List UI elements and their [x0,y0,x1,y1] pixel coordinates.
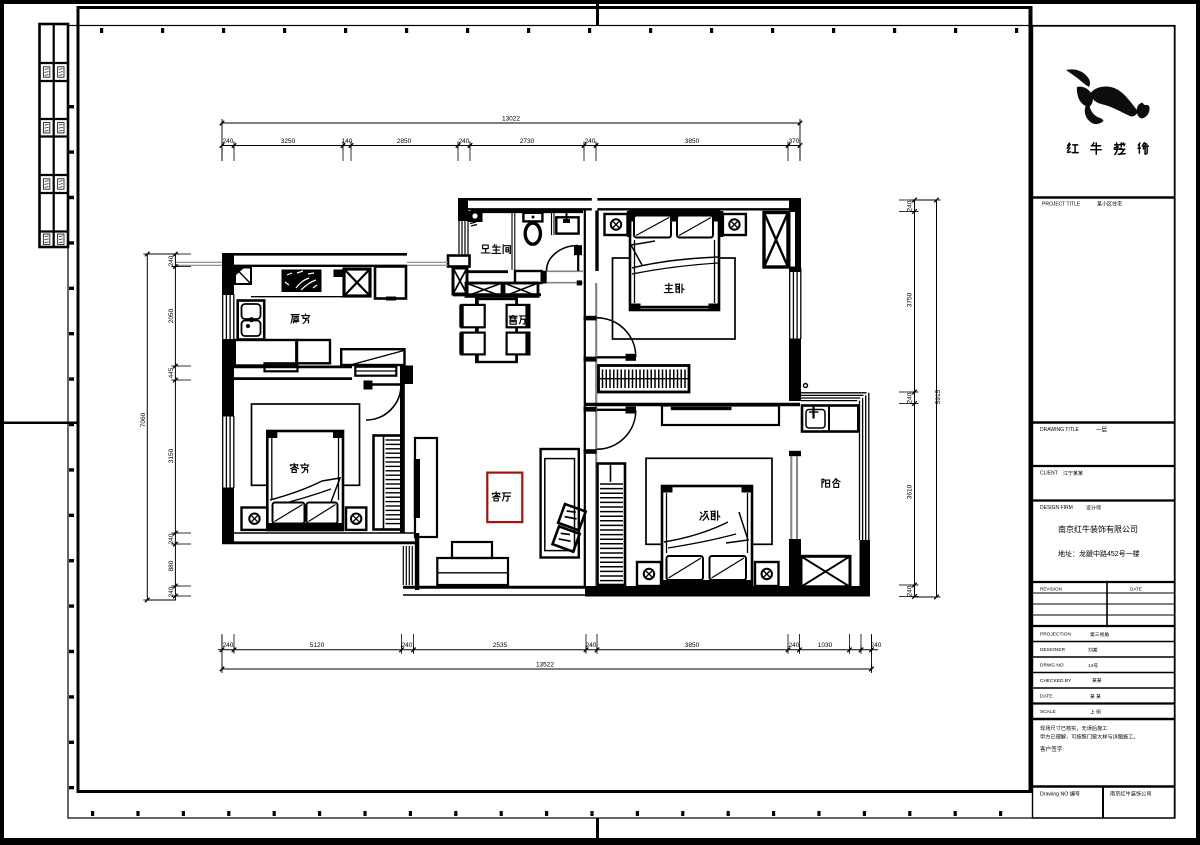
svg-text:REVISION: REVISION [1040,587,1062,592]
svg-text:370: 370 [789,138,800,145]
svg-text:3750: 3750 [907,292,914,307]
svg-text:240: 240 [168,586,175,597]
svg-text:240: 240 [586,642,597,649]
svg-text:3850: 3850 [685,138,700,145]
svg-text:2850: 2850 [397,138,412,145]
svg-text:DRAWING TITLE: DRAWING TITLE [1040,427,1080,433]
svg-text:240: 240 [789,642,800,649]
svg-text:PROJECTION: PROJECTION [1040,632,1071,638]
svg-text:一层: 一层 [1096,427,1108,434]
svg-text:240: 240 [168,533,175,544]
svg-text:5120: 5120 [310,642,325,649]
svg-text:240: 240 [907,200,914,211]
svg-text:240: 240 [907,392,914,403]
svg-text:7060: 7060 [140,412,147,427]
svg-text:13022: 13022 [502,116,520,123]
svg-text:240: 240 [402,642,413,649]
svg-text:第三视角: 第三视角 [1090,631,1109,638]
svg-text:DRWG NO: DRWG NO [1040,663,1064,669]
svg-text:13522: 13522 [536,662,554,669]
svg-text:2730: 2730 [520,138,535,145]
svg-text:设计师: 设计师 [1086,505,1101,512]
svg-text:客户签字:: 客户签字: [1040,745,1064,753]
svg-text:240: 240 [871,642,882,649]
svg-text:240: 240 [907,585,914,596]
svg-text:2050: 2050 [168,308,175,323]
svg-text:PROJECT TITLE: PROJECT TITLE [1042,202,1081,208]
svg-text:240: 240 [168,255,175,266]
svg-text:240: 240 [223,642,234,649]
svg-text:14号: 14号 [1088,663,1098,669]
svg-text:240: 240 [223,138,234,145]
svg-text:240: 240 [585,138,596,145]
svg-text:南京红牛装饰公司: 南京红牛装饰公司 [1110,790,1152,798]
svg-text:880: 880 [168,560,175,571]
svg-text:Drawing NO 编号: Drawing NO 编号 [1040,790,1080,798]
svg-text:现场尺寸已核实，无误后施工: 现场尺寸已核实，无误后施工 [1040,724,1107,732]
svg-text:3150: 3150 [168,448,175,463]
svg-text:某小区住宅: 某小区住宅 [1097,201,1122,208]
svg-text:DESIGN FIRM: DESIGN FIRM [1040,505,1073,511]
svg-text:DESIGNER: DESIGNER [1040,647,1066,653]
svg-text:SCALE: SCALE [1040,709,1056,715]
svg-text:3850: 3850 [685,642,700,649]
svg-text:地址：龙蹏中路452号一楼: 地址：龙蹏中路452号一楼 [1058,549,1140,558]
svg-text:DATE: DATE [1130,587,1142,592]
svg-text:某某: 某某 [1092,678,1102,684]
svg-text:CLIENT: CLIENT [1040,471,1058,477]
svg-text:江宁某某: 江宁某某 [1063,470,1083,477]
svg-text:240: 240 [459,138,470,145]
svg-text:CHECKED BY: CHECKED BY [1040,678,1072,684]
svg-text:445: 445 [168,367,175,378]
svg-text:140: 140 [342,138,353,145]
svg-text:某 某: 某 某 [1090,694,1101,700]
svg-text:南京红牛装饰有限公司: 南京红牛装饰有限公司 [1058,524,1138,534]
svg-text:3250: 3250 [281,138,296,145]
svg-text:刘某: 刘某 [1088,647,1098,654]
svg-text:上 例: 上 例 [1090,709,1101,716]
svg-text:甲方已理解，可按照门窗大样与详图施工。: 甲方已理解，可按照门窗大样与详图施工。 [1040,733,1139,741]
svg-text:2535: 2535 [493,642,508,649]
svg-text:3610: 3610 [907,484,914,499]
svg-text:1030: 1030 [818,642,833,649]
svg-text:5915: 5915 [935,389,942,404]
svg-text:DATE: DATE [1040,694,1052,700]
